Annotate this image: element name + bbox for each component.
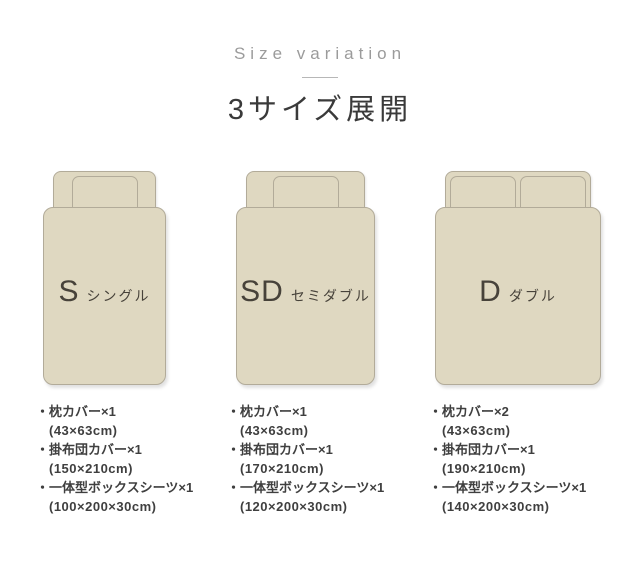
spec-item: ・掛布団カバー×1 (170×210cm) [227, 440, 384, 478]
spec-item-label: ・一体型ボックスシーツ×1 [36, 478, 193, 497]
spec-item-size: (140×200×30cm) [429, 497, 586, 516]
size-code: D [479, 275, 502, 309]
spec-item: ・枕カバー×1 (43×63cm) [36, 402, 193, 440]
spec-item-size: (120×200×30cm) [227, 497, 384, 516]
spec-item-size: (43×63cm) [227, 421, 384, 440]
spec-item-label: ・枕カバー×1 [227, 402, 384, 421]
spec-item: ・枕カバー×1 (43×63cm) [227, 402, 384, 440]
spec-item: ・一体型ボックスシーツ×1 (100×200×30cm) [36, 478, 193, 516]
bed-illustration-double: D ダブル [435, 171, 601, 385]
spec-item-label: ・掛布団カバー×1 [227, 440, 384, 459]
duvet-cover: S シングル [43, 207, 166, 385]
spec-item-label: ・一体型ボックスシーツ×1 [227, 478, 384, 497]
duvet-cover: D ダブル [435, 207, 601, 385]
size-label: D ダブル [479, 275, 557, 309]
spec-item-size: (190×210cm) [429, 459, 586, 478]
spec-item: ・掛布団カバー×1 (150×210cm) [36, 440, 193, 478]
bed-illustration-semi-double: SD セミダブル [236, 171, 375, 385]
size-variation-panel: Size variation 3サイズ展開 S シングル SD セミダブル [0, 0, 640, 576]
size-code: S [58, 275, 79, 309]
subtitle-en: Size variation [0, 44, 640, 64]
spec-list-semi-double: ・枕カバー×1 (43×63cm) ・掛布団カバー×1 (170×210cm) … [227, 402, 384, 516]
spec-item: ・一体型ボックスシーツ×1 (120×200×30cm) [227, 478, 384, 516]
duvet-cover: SD セミダブル [236, 207, 375, 385]
size-name: セミダブル [291, 286, 371, 306]
spec-item-label: ・枕カバー×1 [36, 402, 193, 421]
spec-item-label: ・掛布団カバー×1 [36, 440, 193, 459]
title-divider [302, 77, 338, 78]
spec-item-size: (150×210cm) [36, 459, 193, 478]
size-label: SD セミダブル [240, 275, 371, 309]
size-name: シングル [87, 286, 151, 306]
spec-item-size: (170×210cm) [227, 459, 384, 478]
spec-item: ・掛布団カバー×1 (190×210cm) [429, 440, 586, 478]
spec-item-label: ・一体型ボックスシーツ×1 [429, 478, 586, 497]
spec-item-size: (100×200×30cm) [36, 497, 193, 516]
spec-item: ・枕カバー×2 (43×63cm) [429, 402, 586, 440]
spec-list-double: ・枕カバー×2 (43×63cm) ・掛布団カバー×1 (190×210cm) … [429, 402, 586, 516]
size-label: S シングル [58, 275, 150, 309]
spec-list-single: ・枕カバー×1 (43×63cm) ・掛布団カバー×1 (150×210cm) … [36, 402, 193, 516]
page-title: 3サイズ展開 [0, 86, 640, 128]
spec-item: ・一体型ボックスシーツ×1 (140×200×30cm) [429, 478, 586, 516]
spec-item-label: ・枕カバー×2 [429, 402, 586, 421]
spec-item-size: (43×63cm) [36, 421, 193, 440]
size-code: SD [240, 275, 284, 309]
spec-item-label: ・掛布団カバー×1 [429, 440, 586, 459]
size-name: ダブル [509, 286, 557, 306]
spec-item-size: (43×63cm) [429, 421, 586, 440]
bed-illustration-single: S シングル [43, 171, 166, 385]
